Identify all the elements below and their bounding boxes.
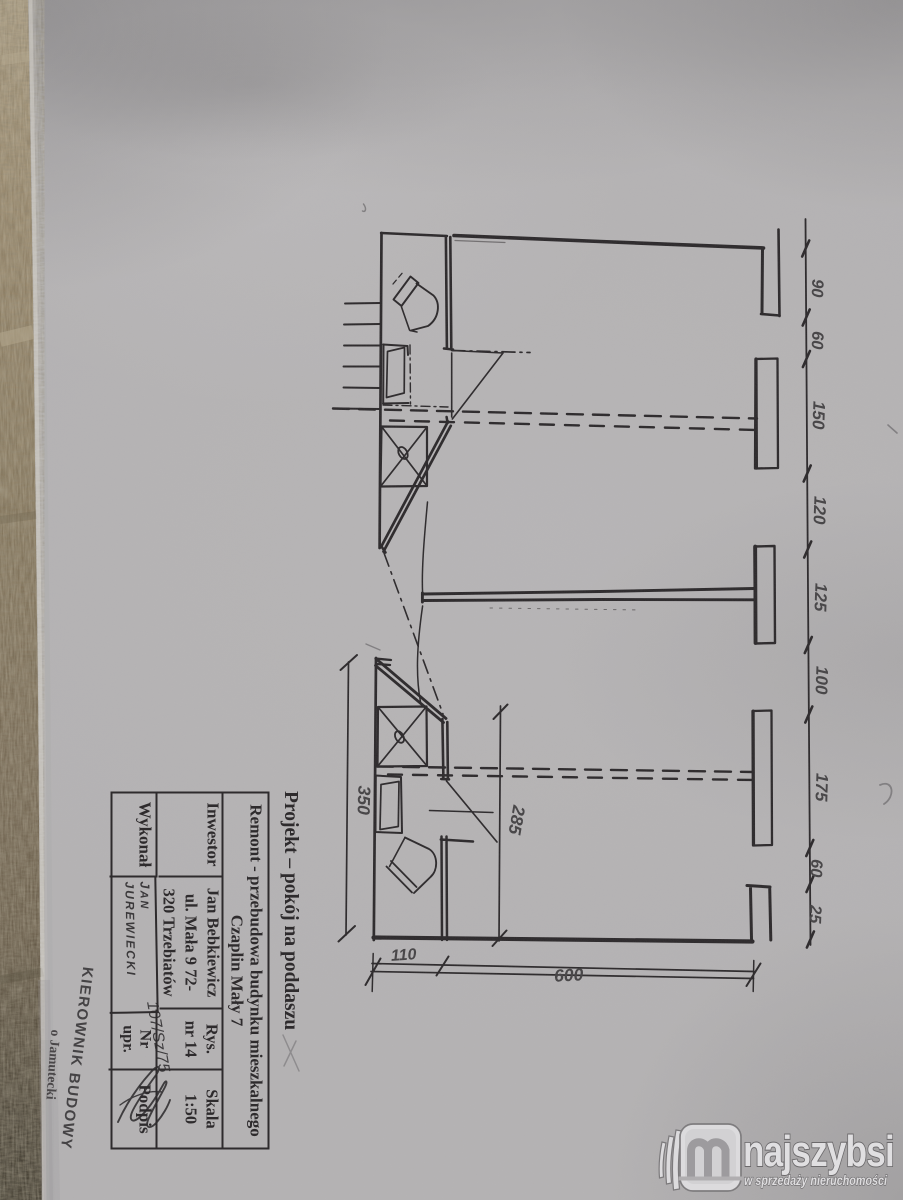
svg-text:w sprzedaży nieruchomości: w sprzedaży nieruchomości [744, 1172, 888, 1188]
svg-text:najszybsi: najszybsi [743, 1127, 894, 1176]
